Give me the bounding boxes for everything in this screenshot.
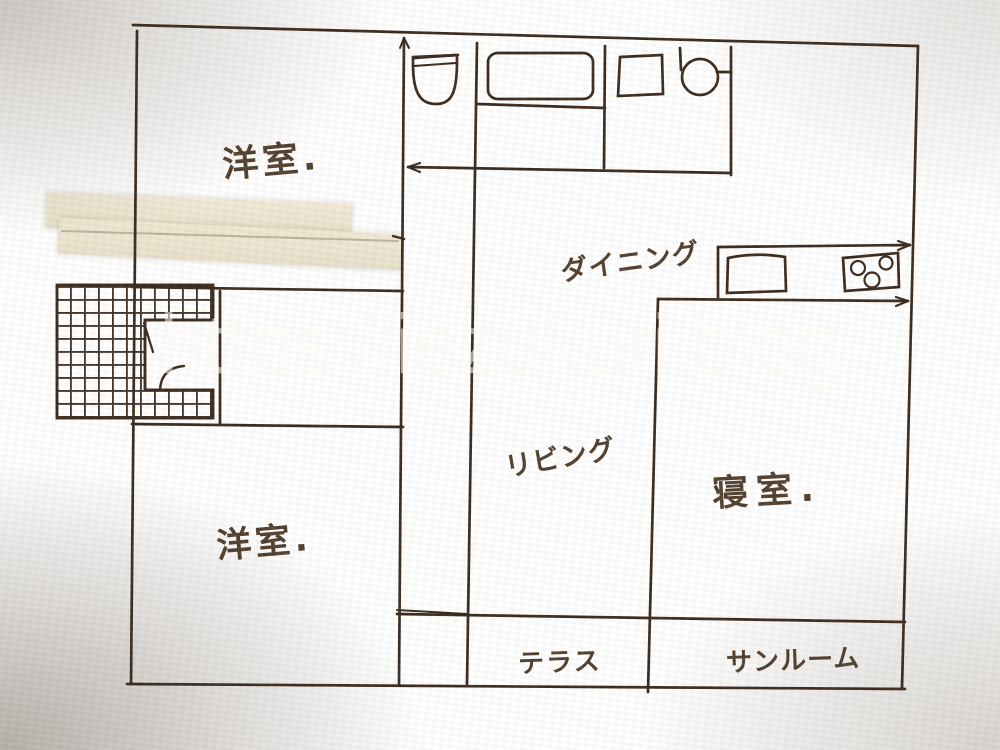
wash-basin-icon: [680, 48, 731, 95]
room-label-bedroom: 寝室.: [711, 459, 823, 517]
washing-machine-icon: [618, 55, 663, 96]
staircase-icon: [57, 285, 213, 418]
room-label-sunroom: サンルーム: [725, 638, 860, 680]
room-label-terrace: テラス: [517, 641, 602, 681]
room-label-yoshitsu-lower: 洋室.: [214, 510, 313, 569]
outer-walls: [127, 25, 918, 689]
room-label-yoshitsu-upper: 洋室.: [220, 128, 322, 188]
toilet-icon: [413, 55, 458, 104]
stove-icon: [843, 253, 899, 291]
kitchen-sink-icon: [727, 255, 786, 293]
floor-plan-photo: 洋室. 洋室. ダイニング リビング 寝室. テラス サンルーム https:/…: [0, 0, 1000, 750]
bathtub-icon: [488, 53, 593, 99]
